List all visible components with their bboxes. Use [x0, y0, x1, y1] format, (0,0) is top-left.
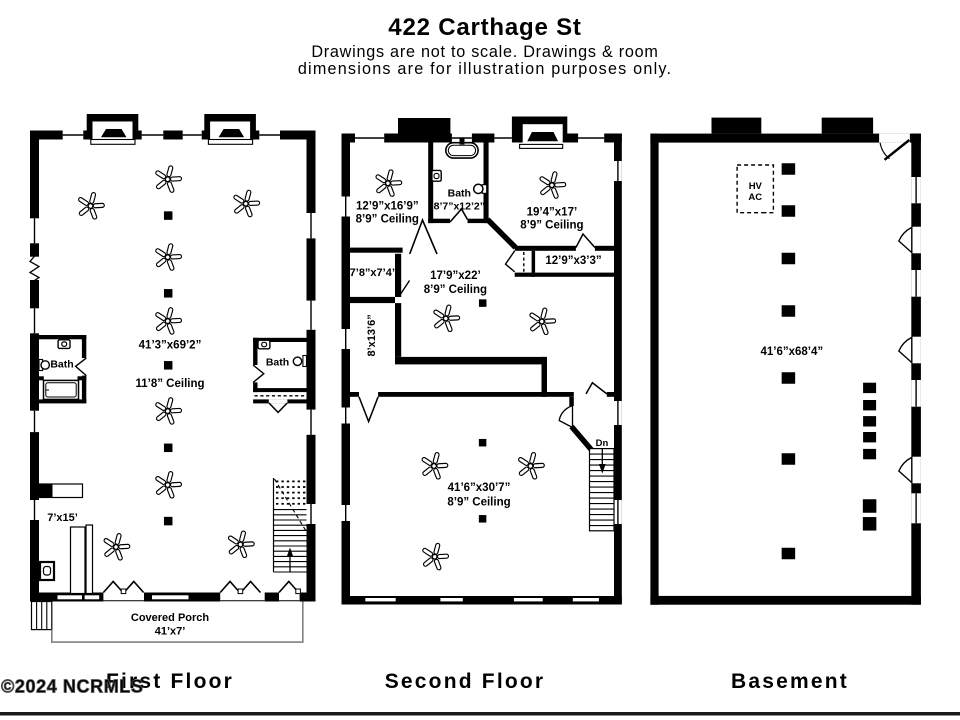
svg-text:8’x13’6”: 8’x13’6”: [366, 314, 378, 356]
svg-text:Dn: Dn: [596, 438, 609, 449]
svg-text:dimensions are for illustratio: dimensions are for illustration purposes…: [298, 60, 672, 78]
svg-text:8’9” Ceiling: 8’9” Ceiling: [356, 214, 419, 226]
svg-text:12’9”x3’3”: 12’9”x3’3”: [545, 255, 601, 267]
svg-text:AC: AC: [748, 192, 762, 203]
svg-text:41’6”x30’7”: 41’6”x30’7”: [448, 482, 511, 494]
svg-text:41’6”x68’4”: 41’6”x68’4”: [760, 346, 823, 358]
svg-text:41’3”x69’2”: 41’3”x69’2”: [139, 339, 202, 351]
svg-text:8’7”x12’2”: 8’7”x12’2”: [434, 201, 485, 213]
svg-text:19’4”x17’: 19’4”x17’: [527, 207, 578, 219]
svg-text:Bath: Bath: [266, 356, 289, 368]
svg-text:7’x15’: 7’x15’: [47, 512, 78, 524]
svg-text:17’9”x22’: 17’9”x22’: [430, 270, 481, 282]
svg-text:7’8”x7’4”: 7’8”x7’4”: [350, 267, 398, 279]
svg-text:Bath: Bath: [50, 359, 73, 371]
svg-text:©2024 NCRMLS: ©2024 NCRMLS: [1, 677, 144, 697]
svg-text:12’9”x16’9”: 12’9”x16’9”: [356, 201, 419, 213]
svg-text:Basement: Basement: [731, 670, 849, 693]
svg-text:11’8” Ceiling: 11’8” Ceiling: [135, 378, 204, 390]
svg-text:Covered Porch: Covered Porch: [131, 612, 210, 624]
svg-text:Bath: Bath: [448, 188, 471, 200]
svg-text:Second Floor: Second Floor: [385, 670, 546, 693]
svg-text:422 Carthage St: 422 Carthage St: [388, 14, 581, 41]
svg-text:Drawings are not to scale. Dra: Drawings are not to scale. Drawings & ro…: [311, 43, 658, 61]
svg-text:8’9” Ceiling: 8’9” Ceiling: [424, 284, 487, 296]
svg-text:41’x7’: 41’x7’: [155, 625, 186, 637]
svg-text:8’9” Ceiling: 8’9” Ceiling: [520, 220, 583, 232]
svg-text:8’9” Ceiling: 8’9” Ceiling: [447, 497, 510, 509]
svg-text:HV: HV: [749, 181, 763, 192]
